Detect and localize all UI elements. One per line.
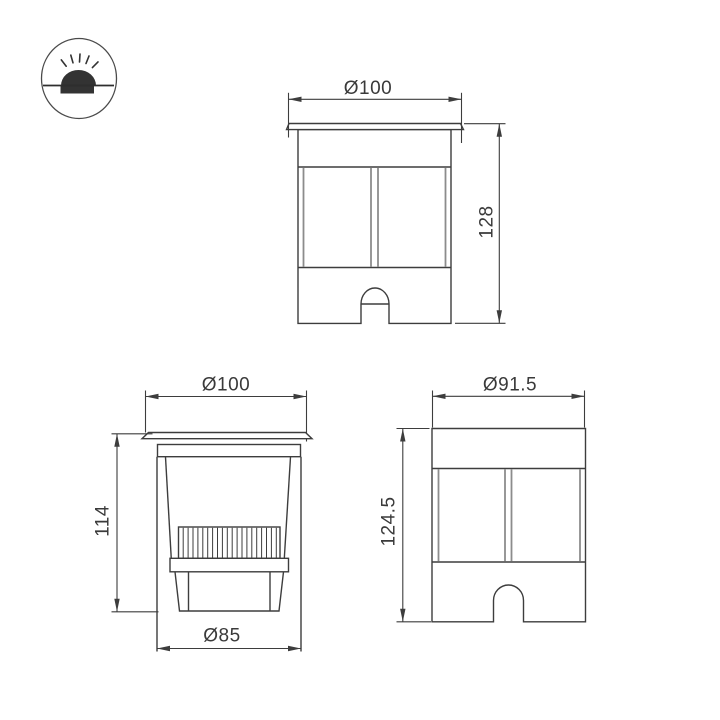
section-view: Ø100 Ø85 114: [93, 375, 313, 652]
arrowhead-down: [400, 609, 405, 622]
arrowhead-left: [157, 646, 170, 651]
section-base-diameter-label: Ø85: [203, 626, 240, 647]
arrowhead-right: [572, 394, 585, 399]
arrowhead-left: [433, 394, 446, 399]
arrowhead-right: [288, 646, 301, 651]
light-rays: [61, 54, 98, 68]
light-ray: [86, 56, 89, 64]
light-ray: [80, 54, 81, 62]
heatsink-outline: [179, 527, 281, 558]
light-ray: [92, 62, 98, 68]
light-ray: [61, 60, 66, 66]
arrowhead-right: [294, 394, 307, 399]
arrowhead-left: [146, 394, 159, 399]
profile-view: Ø91.5 124.5: [379, 374, 586, 622]
base-housing: [175, 572, 284, 611]
arrowhead-right: [449, 97, 462, 102]
arrowhead-down: [114, 599, 119, 612]
arrowhead-up: [497, 124, 502, 137]
technical-drawing: Ø100 128 Ø100 Ø85 11: [0, 0, 720, 720]
body-outline: [432, 429, 586, 622]
front-view: Ø100 128: [287, 78, 506, 323]
arrowhead-left: [289, 97, 302, 102]
trim-ring: [158, 445, 301, 457]
recessed-housing: [61, 86, 95, 94]
driver-plate: [170, 558, 289, 572]
front-height-label: 128: [477, 205, 498, 238]
arrowhead-up: [400, 429, 405, 442]
technical-drawing-page: Ø100 128 Ø100 Ø85 11: [0, 0, 720, 720]
profile-diameter-label: Ø91.5: [483, 374, 537, 395]
arrowhead-down: [497, 310, 502, 323]
inner-taper-wall: [166, 457, 173, 572]
profile-height-label: 124.5: [379, 496, 400, 546]
light-dome: [61, 70, 96, 86]
light-ray: [71, 55, 73, 63]
body-outline: [298, 130, 451, 324]
front-diameter-label: Ø100: [344, 78, 392, 99]
inground-light-icon: [42, 39, 117, 119]
section-height-label: 114: [93, 505, 114, 537]
flange: [142, 433, 312, 439]
section-diameter-label: Ø100: [202, 375, 250, 396]
inner-taper-wall: [284, 457, 291, 572]
flange: [287, 124, 464, 130]
arrowhead-up: [114, 434, 119, 447]
